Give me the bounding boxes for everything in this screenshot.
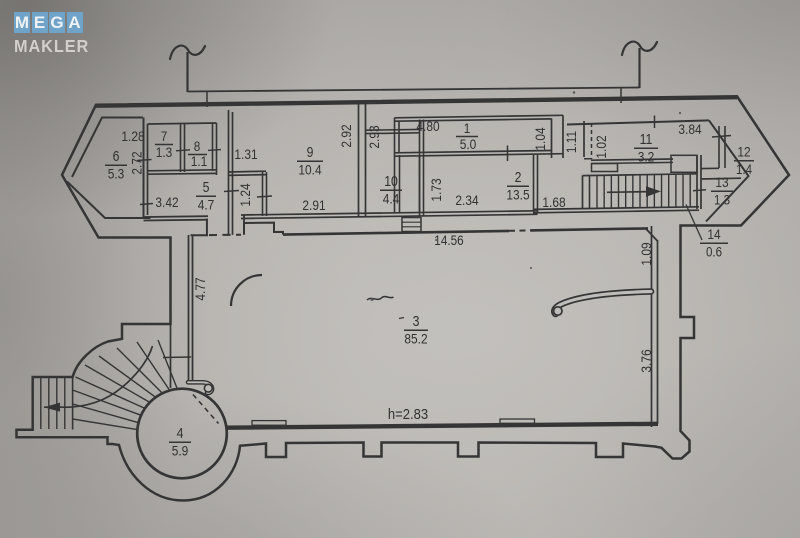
svg-text:3: 3: [413, 313, 420, 329]
svg-text:h=2.83: h=2.83: [388, 406, 429, 422]
svg-text:3.84: 3.84: [678, 121, 701, 137]
svg-text:0.6: 0.6: [706, 244, 722, 260]
svg-text:7: 7: [161, 128, 168, 144]
svg-text:1: 1: [464, 120, 471, 136]
svg-text:3.42: 3.42: [155, 194, 178, 210]
svg-text:1.1: 1.1: [191, 153, 208, 169]
svg-text:4.77: 4.77: [192, 277, 208, 300]
svg-text:1.09: 1.09: [638, 242, 654, 265]
svg-text:4.4: 4.4: [383, 191, 400, 207]
svg-text:2.91: 2.91: [302, 197, 325, 213]
svg-text:2.92: 2.92: [338, 124, 354, 147]
svg-text:2.93: 2.93: [366, 125, 382, 148]
svg-text:10: 10: [384, 173, 398, 189]
svg-text:1.24: 1.24: [237, 183, 253, 206]
svg-text:11: 11: [640, 131, 653, 147]
svg-text:5.0: 5.0: [460, 136, 477, 152]
svg-text:4.7: 4.7: [198, 197, 215, 213]
svg-text:1.28: 1.28: [121, 128, 144, 144]
svg-text:5.3: 5.3: [108, 166, 125, 182]
svg-text:1.4: 1.4: [736, 161, 752, 177]
svg-text:1.04: 1.04: [532, 127, 548, 150]
svg-text:5.9: 5.9: [172, 443, 189, 459]
svg-text:13.5: 13.5: [506, 187, 529, 203]
svg-text:6: 6: [113, 148, 120, 164]
svg-text:1.68: 1.68: [542, 194, 565, 210]
svg-text:4.80: 4.80: [416, 118, 439, 134]
svg-text:2: 2: [515, 169, 522, 185]
svg-text:1.11: 1.11: [563, 131, 579, 153]
svg-text:1.73: 1.73: [428, 178, 444, 201]
svg-text:12: 12: [737, 144, 750, 160]
svg-text:1.31: 1.31: [234, 146, 257, 162]
svg-text:3.2: 3.2: [638, 149, 655, 165]
svg-text:14.56: 14.56: [434, 232, 463, 248]
svg-text:2.72: 2.72: [129, 151, 145, 174]
svg-text:5: 5: [203, 179, 210, 195]
svg-text:1.3: 1.3: [156, 144, 173, 160]
svg-text:13: 13: [715, 174, 728, 190]
svg-text:1.3: 1.3: [714, 192, 730, 208]
svg-text:10.4: 10.4: [298, 162, 321, 178]
svg-text:2.34: 2.34: [455, 192, 478, 208]
svg-text:8: 8: [194, 138, 201, 154]
svg-text:85.2: 85.2: [404, 331, 427, 347]
svg-text:1.02: 1.02: [593, 135, 609, 158]
svg-text:3.76: 3.76: [638, 349, 654, 372]
svg-text:14: 14: [707, 226, 720, 242]
svg-text:4: 4: [177, 425, 184, 441]
svg-text:9: 9: [307, 144, 314, 160]
